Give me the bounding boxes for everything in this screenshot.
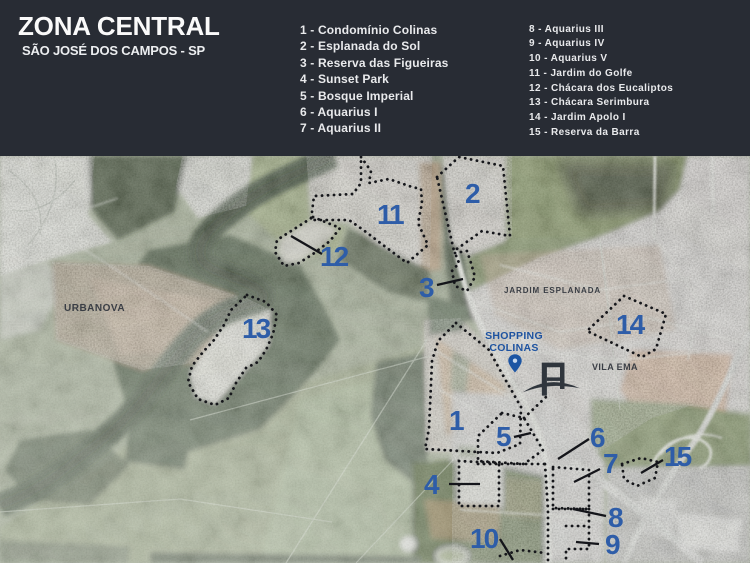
svg-text:7: 7 (603, 448, 619, 479)
svg-text:3: 3 (419, 272, 435, 303)
svg-text:1: 1 (449, 405, 465, 436)
svg-text:COLINAS: COLINAS (489, 342, 538, 354)
svg-text:2: 2 (465, 178, 481, 209)
svg-text:11: 11 (377, 199, 404, 230)
svg-text:4: 4 (424, 469, 440, 500)
svg-text:5: 5 (496, 421, 512, 452)
svg-text:10: 10 (470, 523, 499, 554)
svg-text:15: 15 (664, 441, 692, 472)
svg-text:VILA EMA: VILA EMA (592, 362, 638, 372)
svg-text:13: 13 (242, 313, 271, 344)
svg-text:9: 9 (605, 529, 621, 560)
svg-text:12: 12 (320, 241, 349, 272)
svg-text:SHOPPING: SHOPPING (485, 330, 543, 342)
svg-text:URBANOVA: URBANOVA (64, 303, 125, 314)
svg-text:14: 14 (616, 309, 646, 340)
svg-text:JARDIM ESPLANADA: JARDIM ESPLANADA (504, 286, 601, 295)
